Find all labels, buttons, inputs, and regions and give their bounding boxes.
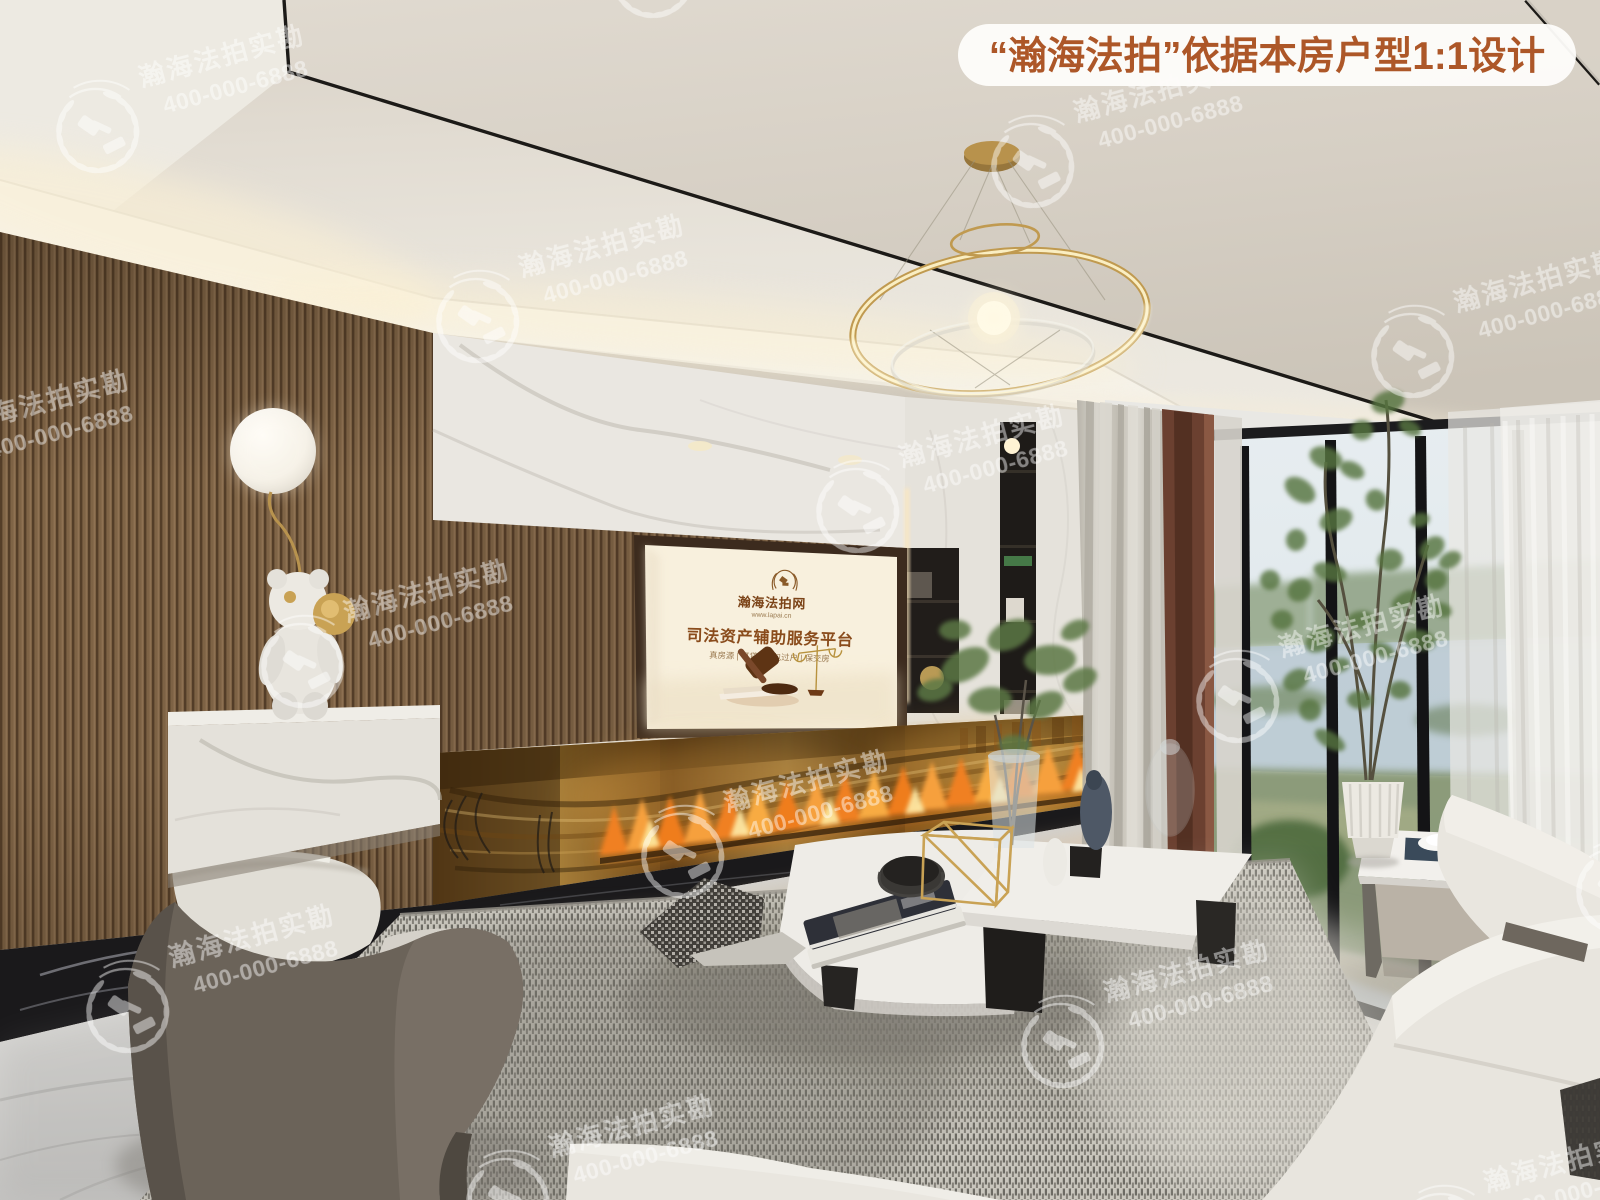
svg-text:瀚海法拍网: 瀚海法拍网 (738, 594, 807, 611)
svg-text:“瀚海法拍”依据本房户型1:1设计: “瀚海法拍”依据本房户型1:1设计 (989, 35, 1545, 78)
svg-text:www.lapai.cn: www.lapai.cn (750, 612, 791, 620)
